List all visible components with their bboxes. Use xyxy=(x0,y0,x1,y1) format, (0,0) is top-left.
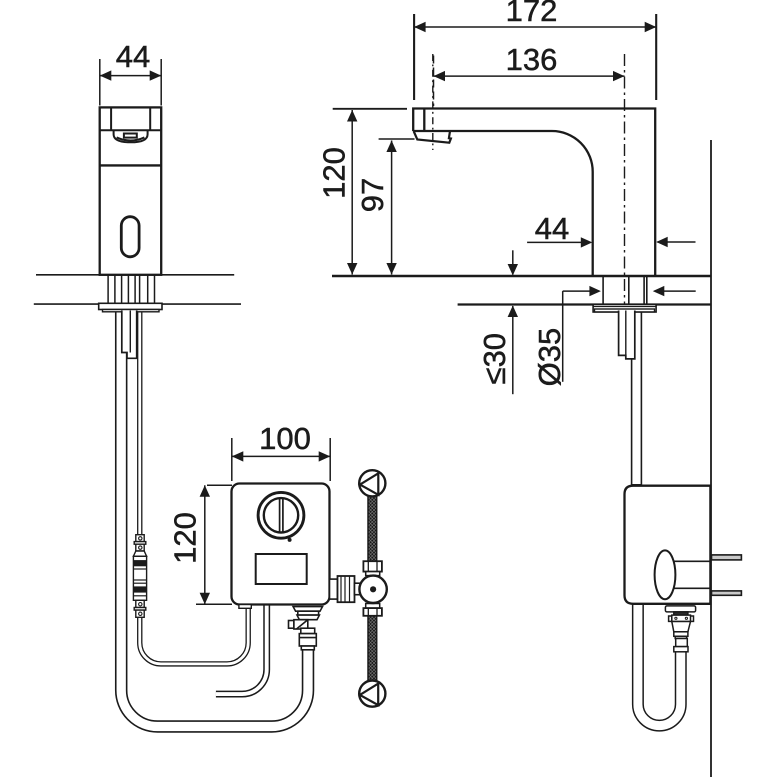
svg-text:Ø35: Ø35 xyxy=(532,328,567,387)
svg-text:120: 120 xyxy=(317,147,352,199)
svg-text:≤30: ≤30 xyxy=(477,333,512,385)
svg-text:44: 44 xyxy=(116,39,150,74)
svg-text:120: 120 xyxy=(168,512,203,564)
svg-text:136: 136 xyxy=(506,42,558,77)
svg-text:172: 172 xyxy=(506,0,558,28)
svg-text:44: 44 xyxy=(535,211,569,246)
svg-text:100: 100 xyxy=(259,421,311,456)
svg-text:97: 97 xyxy=(355,178,390,212)
